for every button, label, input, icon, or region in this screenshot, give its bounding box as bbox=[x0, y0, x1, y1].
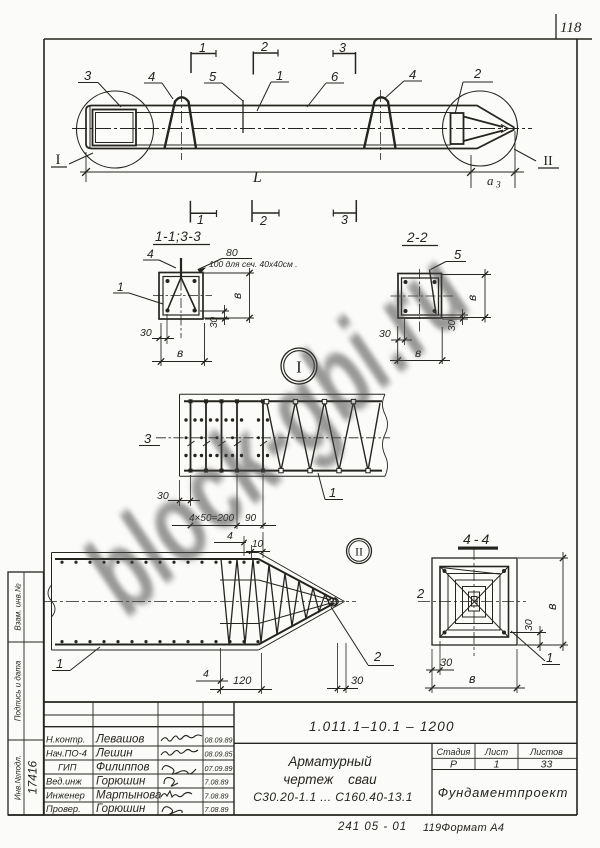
svg-text:3: 3 bbox=[144, 431, 152, 446]
svg-text:4: 4 bbox=[409, 67, 416, 82]
svg-text:3: 3 bbox=[339, 41, 346, 55]
svg-text:чертеж сваи: чертеж сваи bbox=[283, 772, 377, 787]
svg-text:6: 6 bbox=[331, 69, 339, 84]
svg-text:4: 4 bbox=[147, 247, 154, 261]
svg-text:10: 10 bbox=[252, 539, 264, 550]
svg-text:1: 1 bbox=[494, 759, 500, 771]
svg-text:08.09.89: 08.09.89 bbox=[205, 736, 233, 745]
svg-text:5: 5 bbox=[209, 69, 217, 84]
svg-text:ГИП: ГИП bbox=[58, 763, 77, 773]
svg-text:Подпись и дата: Подпись и дата bbox=[14, 660, 23, 721]
svg-text:II: II bbox=[355, 545, 363, 559]
svg-text:80: 80 bbox=[226, 247, 238, 259]
svg-text:30: 30 bbox=[351, 675, 364, 687]
svg-text:Стадия: Стадия bbox=[437, 747, 471, 757]
svg-text:Р: Р bbox=[450, 759, 457, 771]
svg-text:30: 30 bbox=[209, 316, 220, 328]
svg-text:Горюшин: Горюшин bbox=[96, 776, 146, 788]
svg-text:3: 3 bbox=[84, 68, 92, 83]
svg-text:a: a bbox=[487, 173, 494, 188]
svg-text:5: 5 bbox=[454, 247, 462, 262]
svg-text:100 для сеч. 40х40см .: 100 для сеч. 40х40см . bbox=[209, 259, 298, 269]
svg-text:Лист: Лист bbox=[484, 747, 509, 757]
svg-text:Инженер: Инженер bbox=[46, 791, 85, 801]
svg-text:1.011.1–10.1 – 1200: 1.011.1–10.1 – 1200 bbox=[309, 719, 455, 734]
svg-text:118: 118 bbox=[560, 20, 582, 36]
svg-text:17416: 17416 bbox=[26, 760, 40, 794]
svg-text:3: 3 bbox=[495, 181, 501, 191]
svg-text:1-1;3-3: 1-1;3-3 bbox=[155, 229, 201, 244]
svg-text:1: 1 bbox=[197, 213, 204, 227]
svg-text:30: 30 bbox=[140, 327, 152, 339]
svg-text:241 05 - 01: 241 05 - 01 bbox=[337, 821, 407, 833]
svg-text:Мартынова: Мартынова bbox=[96, 790, 161, 802]
svg-text:в: в bbox=[469, 672, 476, 686]
svg-text:33: 33 bbox=[541, 759, 553, 771]
svg-text:2: 2 bbox=[259, 214, 267, 228]
svg-text:Н.контр.: Н.контр. bbox=[46, 735, 85, 745]
svg-text:L: L bbox=[252, 169, 262, 186]
svg-text:Горюшин: Горюшин bbox=[96, 803, 146, 815]
svg-text:Левашов: Левашов bbox=[95, 734, 144, 746]
svg-text:119Формат А4: 119Формат А4 bbox=[423, 822, 504, 834]
svg-text:Фундаментпроект: Фундаментпроект bbox=[438, 785, 569, 800]
svg-text:3: 3 bbox=[341, 213, 348, 227]
svg-text:Провер.: Провер. bbox=[46, 804, 81, 814]
svg-text:1: 1 bbox=[276, 68, 283, 83]
svg-text:1: 1 bbox=[199, 41, 206, 55]
svg-text:4: 4 bbox=[148, 69, 155, 84]
svg-text:Листов: Листов bbox=[529, 747, 563, 757]
svg-text:в: в bbox=[230, 293, 244, 299]
svg-text:2: 2 bbox=[373, 649, 382, 664]
svg-text:4: 4 bbox=[203, 668, 209, 680]
svg-text:2: 2 bbox=[473, 66, 482, 81]
svg-text:Лешин: Лешин bbox=[95, 748, 133, 760]
svg-text:С30.20-1.1 ... С160.40-13.1: С30.20-1.1 ... С160.40-13.1 bbox=[253, 790, 413, 804]
svg-text:в: в bbox=[545, 603, 559, 610]
svg-text:1: 1 bbox=[546, 650, 553, 665]
svg-text:08.09.85: 08.09.85 bbox=[205, 750, 234, 759]
svg-text:I: I bbox=[56, 152, 61, 168]
svg-text:Филиппов: Филиппов bbox=[96, 762, 149, 774]
svg-text:07.09.89: 07.09.89 bbox=[205, 764, 233, 773]
svg-text:Инв.№подл.: Инв.№подл. bbox=[14, 755, 23, 800]
svg-text:Арматурный: Арматурный bbox=[287, 754, 372, 769]
svg-text:120: 120 bbox=[233, 675, 252, 687]
svg-text:2: 2 bbox=[416, 586, 425, 601]
svg-text:1: 1 bbox=[56, 656, 63, 671]
svg-text:II: II bbox=[543, 154, 553, 169]
svg-text:Нач.ПО-4: Нач.ПО-4 bbox=[46, 749, 87, 759]
svg-text:в: в bbox=[177, 346, 183, 360]
svg-text:7.08.89: 7.08.89 bbox=[205, 805, 229, 814]
svg-text:2: 2 bbox=[260, 40, 268, 54]
svg-text:1: 1 bbox=[329, 485, 336, 500]
svg-text:1: 1 bbox=[117, 280, 124, 294]
svg-text:Взам. инв.№: Взам. инв.№ bbox=[14, 583, 23, 631]
svg-text:4-4: 4-4 bbox=[463, 531, 492, 547]
svg-text:7.08.89: 7.08.89 bbox=[205, 792, 229, 801]
svg-text:30: 30 bbox=[523, 619, 535, 631]
svg-text:Вед.инж: Вед.инж bbox=[46, 777, 82, 787]
svg-text:7.08.89: 7.08.89 bbox=[205, 778, 229, 787]
